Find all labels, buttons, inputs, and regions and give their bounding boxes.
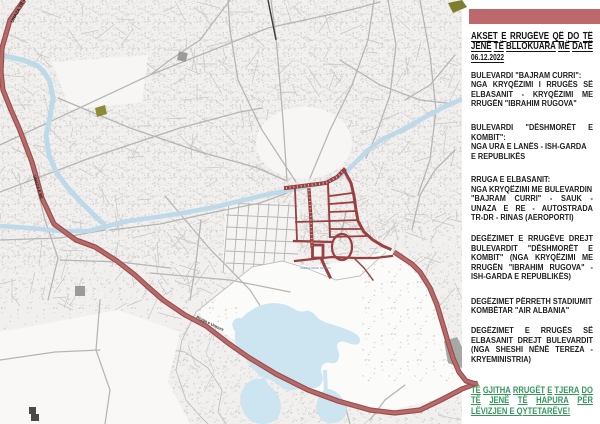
svg-text:SHESHI NENE TEREZA: SHESHI NENE TEREZA xyxy=(300,266,331,270)
